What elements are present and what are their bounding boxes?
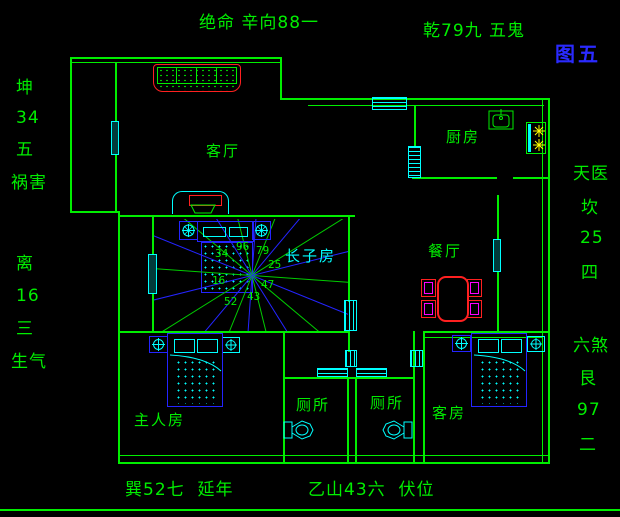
nightstand-lamp-icon	[149, 336, 168, 353]
window-hatch	[111, 121, 119, 155]
wall-segment	[348, 215, 350, 302]
kitchen-sink	[488, 108, 514, 130]
annotation-left-li: 离	[16, 256, 34, 274]
annotation-right-tianyi: 天医	[573, 166, 609, 184]
room-label-dining: 餐厅	[428, 244, 462, 260]
window-hatch	[493, 239, 501, 272]
wall-segment	[283, 377, 415, 379]
compass-ray	[154, 275, 252, 331]
wall-segment	[118, 462, 550, 464]
nightstand-lamp-icon	[452, 335, 471, 352]
room-label-toilet-left: 厕所	[296, 398, 330, 414]
compass-number-w: 16	[212, 275, 225, 287]
wall-segment	[497, 271, 499, 332]
compass-number-e: 25	[268, 259, 281, 271]
wall-segment	[70, 62, 280, 63]
nightstand-lamp-icon	[222, 337, 240, 353]
wall-segment	[283, 331, 285, 463]
annotation-right-25: 25	[580, 230, 604, 248]
wardrobe	[197, 221, 254, 242]
dining-chair	[467, 279, 482, 297]
wall-segment	[348, 331, 350, 352]
toilet-fixture	[283, 418, 315, 442]
annotation-right-97: 97	[577, 402, 601, 420]
compass-ray	[154, 259, 252, 276]
window-hatch	[344, 300, 357, 331]
window-hatch	[372, 97, 407, 110]
annotation-top: 绝命 辛向88一	[199, 15, 319, 33]
annotation-left-kun: 坤	[16, 80, 34, 98]
wall-segment	[423, 331, 425, 463]
wall-segment	[355, 377, 357, 464]
dining-chair	[467, 300, 482, 318]
annotation-right-kan: 坎	[581, 200, 599, 218]
room-label-eldest-son: 长子房	[285, 249, 336, 265]
wall-segment	[115, 153, 117, 213]
tv-trapezoid-icon	[188, 204, 218, 214]
wall-segment	[118, 213, 120, 464]
tv-stand	[172, 191, 229, 214]
window-hatch	[408, 146, 421, 178]
wall-segment	[412, 177, 497, 179]
room-label-living: 客厅	[206, 144, 240, 160]
window-hatch	[356, 368, 387, 377]
compass-number-s: 43	[247, 291, 260, 303]
ceiling-fan-icon	[179, 221, 198, 240]
floor-plan-canvas: 绝命 辛向88一 乾79九 五鬼 图五 巽52七 延年 乙山43六 伏位 坤 3…	[0, 0, 620, 517]
wall-segment	[347, 377, 349, 464]
dining-table	[437, 276, 469, 322]
compass-number-sw: 52	[224, 296, 237, 308]
wall-segment	[280, 57, 282, 100]
annotation-right-gen: 艮	[579, 371, 597, 389]
annotation-bottom-center: 乙山43六 伏位	[308, 482, 434, 500]
wall-segment	[280, 98, 550, 100]
ceiling-fan-icon	[252, 221, 271, 240]
wall-segment	[308, 105, 544, 106]
window-hatch	[410, 350, 423, 367]
annotation-left-wu: 五	[16, 142, 34, 160]
annotation-top-right: 乾79九 五鬼	[423, 23, 525, 41]
compass-number-se: 47	[261, 279, 274, 291]
wall-segment	[513, 177, 549, 179]
compass-ray	[252, 275, 309, 331]
dining-chair	[421, 300, 436, 318]
annotation-bottom-left: 巽52七 延年	[125, 482, 233, 500]
compass-number-n: 96	[236, 241, 249, 253]
window-hatch	[317, 368, 348, 377]
toilet-fixture	[381, 418, 413, 442]
window-hatch	[148, 254, 157, 294]
wall-segment	[70, 57, 282, 59]
annotation-left-34: 34	[16, 110, 40, 128]
wall-segment	[118, 455, 548, 456]
wall-segment	[70, 57, 72, 213]
room-label-master: 主人房	[134, 413, 185, 429]
bed-guest	[471, 333, 527, 407]
annotation-right-si: 四	[581, 265, 599, 283]
window-hatch	[345, 350, 357, 367]
room-label-guest: 客房	[432, 406, 466, 422]
wall-segment	[548, 98, 550, 464]
wall-segment	[115, 62, 117, 122]
compass-number-ne: 79	[256, 245, 269, 257]
room-label-kitchen: 厨房	[446, 130, 480, 146]
annotation-left-shengqi: 生气	[11, 354, 47, 372]
annotation-left-san: 三	[16, 321, 34, 339]
sofa	[153, 64, 241, 92]
bed-master	[167, 333, 223, 407]
annotation-right-er: 二	[579, 437, 597, 455]
wall-segment	[414, 106, 416, 148]
room-label-toilet-right: 厕所	[370, 396, 404, 412]
kitchen-stove	[526, 122, 546, 154]
wall-segment	[0, 509, 620, 511]
compass-number-nw: 34	[215, 248, 228, 260]
annotation-right-liusha: 六煞	[573, 338, 609, 356]
nightstand-lamp-icon	[527, 336, 545, 352]
annotation-left-huohai: 祸害	[11, 175, 47, 193]
annotation-left-16: 16	[16, 288, 40, 306]
dining-chair	[421, 279, 436, 297]
wall-segment	[70, 211, 120, 213]
figure-label: 图五	[555, 38, 601, 67]
wall-segment	[497, 195, 499, 241]
